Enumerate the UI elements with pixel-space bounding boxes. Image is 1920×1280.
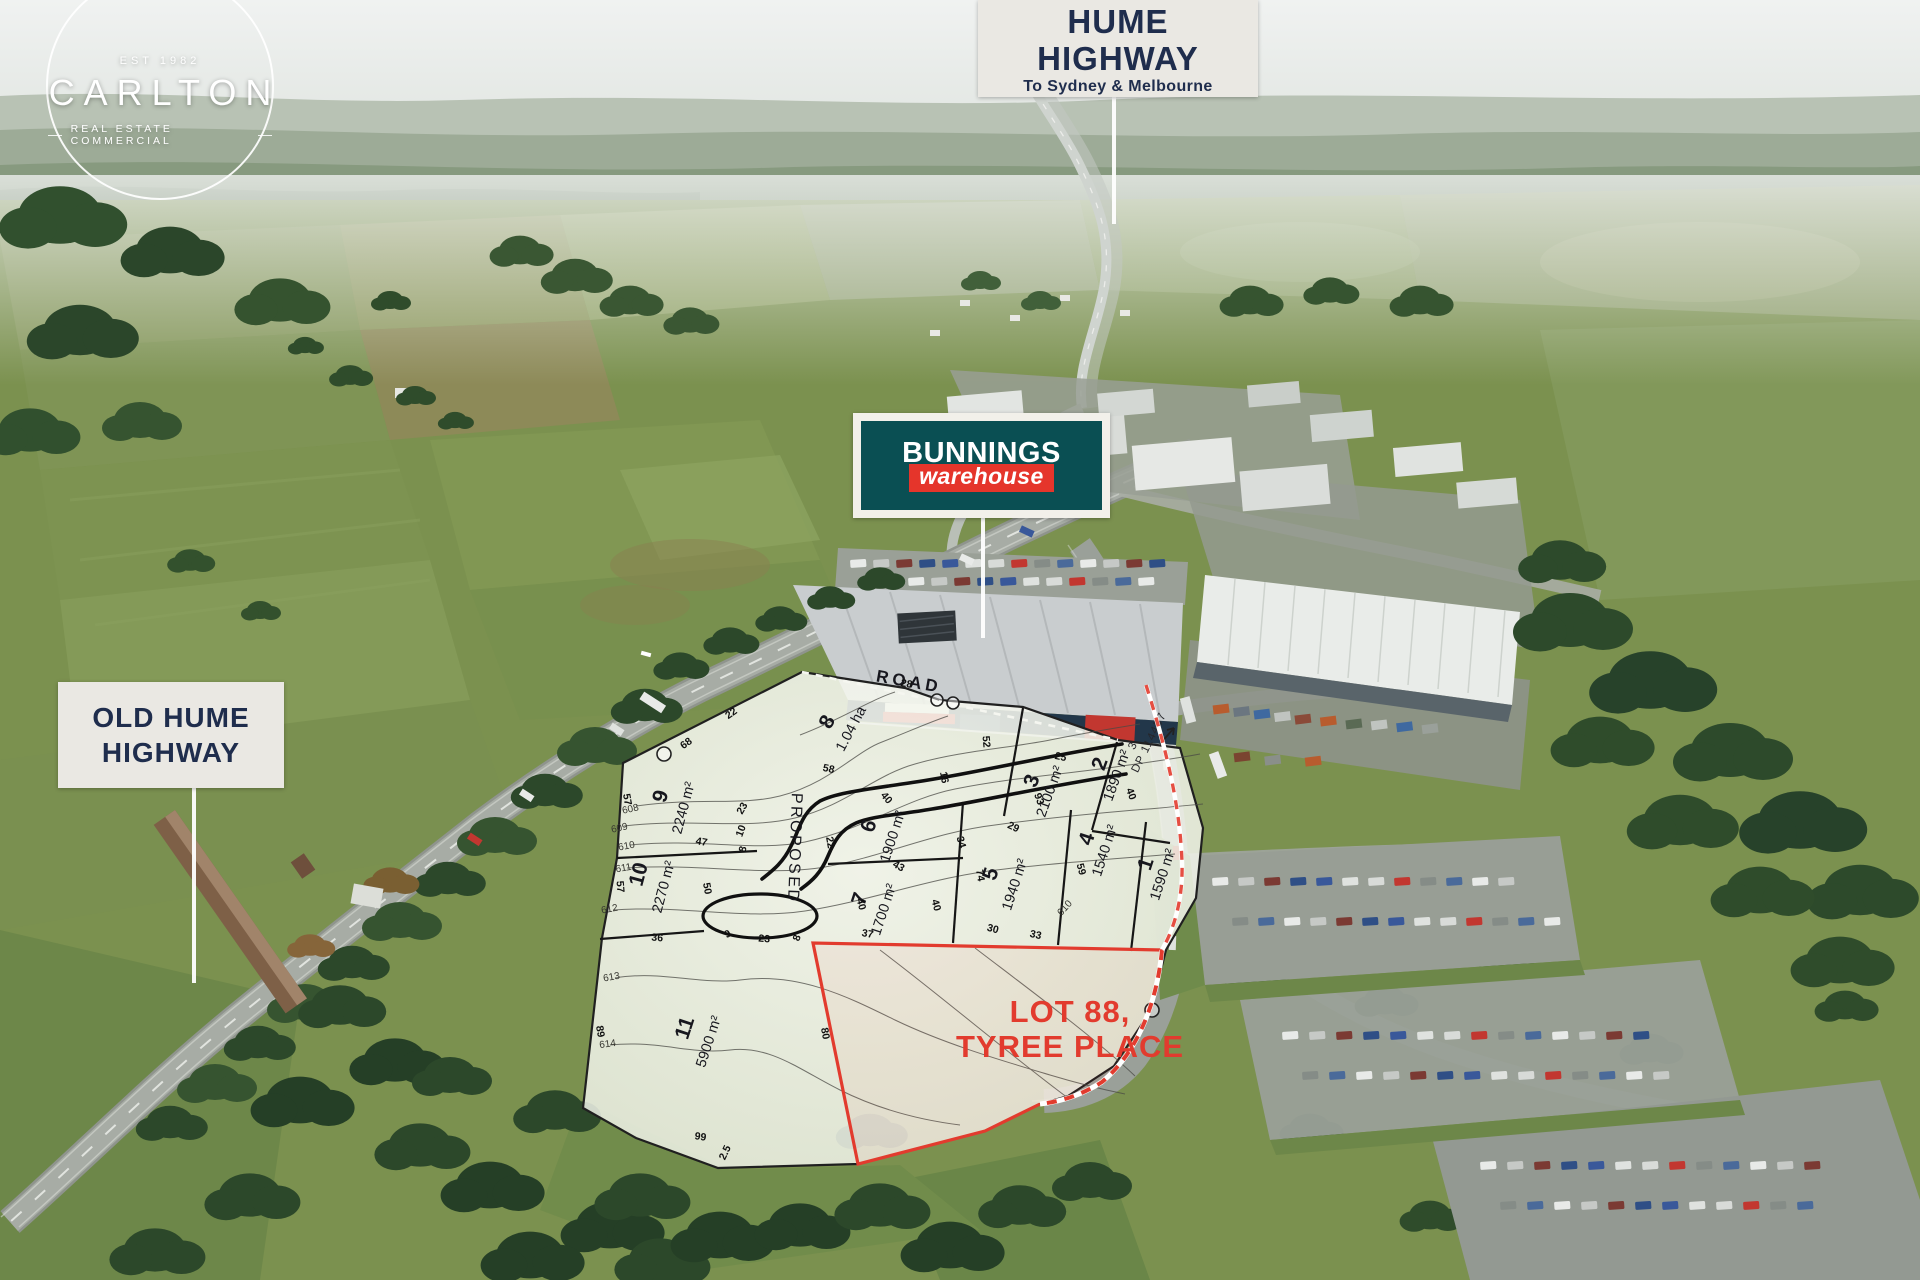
old-hume-highway-callout: OLD HUME HIGHWAY: [58, 682, 284, 788]
dimension-label: 99: [694, 1130, 707, 1144]
old-hume-title-line2: HIGHWAY: [58, 735, 284, 770]
carlton-est-text: EST 1982: [120, 55, 201, 67]
bunnings-warehouse-text: warehouse: [909, 464, 1054, 492]
aerial-photo: 1 1590 m² 2 1890 m² 3 2100 m² 4 1540 m² …: [0, 0, 1920, 1280]
hume-highway-subtitle: To Sydney & Melbourne: [978, 78, 1258, 96]
aerial-marketing-image: 1 1590 m² 2 1890 m² 3 2100 m² 4 1540 m² …: [0, 0, 1920, 1280]
carlton-name-text: CARLTON: [40, 72, 281, 114]
bunnings-logo-callout: BUNNINGS warehouse: [853, 413, 1110, 518]
dimension-label: 37: [861, 927, 875, 941]
lot-88-label-line1: LOT 88,: [1010, 994, 1131, 1029]
dimension-label: 47: [695, 835, 709, 849]
carlton-tagline-text: REAL ESTATE COMMERCIAL: [48, 123, 272, 147]
dimension-label: 89: [593, 1025, 607, 1039]
dimension-label: 23: [758, 933, 771, 946]
hume-highway-callout: HUME HIGHWAY To Sydney & Melbourne: [978, 0, 1258, 97]
old-hume-title-line1: OLD HUME: [58, 700, 284, 735]
hume-highway-title-line2: HIGHWAY: [978, 40, 1258, 77]
dimension-label: 57: [614, 880, 627, 893]
lot-88-label-line2: TYREE PLACE: [956, 1029, 1184, 1064]
dimension-label: 16: [937, 771, 951, 785]
hume-highway-title-line1: HUME: [978, 3, 1258, 40]
dimension-label: 22: [823, 836, 837, 850]
dimension-label: 52: [980, 735, 993, 748]
dimension-label: 74: [973, 869, 987, 883]
dimension-label: 50: [700, 882, 714, 896]
dimension-label: 36: [651, 932, 664, 945]
dimension-label: 28: [900, 677, 914, 691]
bunnings-logo: BUNNINGS warehouse: [861, 421, 1102, 510]
